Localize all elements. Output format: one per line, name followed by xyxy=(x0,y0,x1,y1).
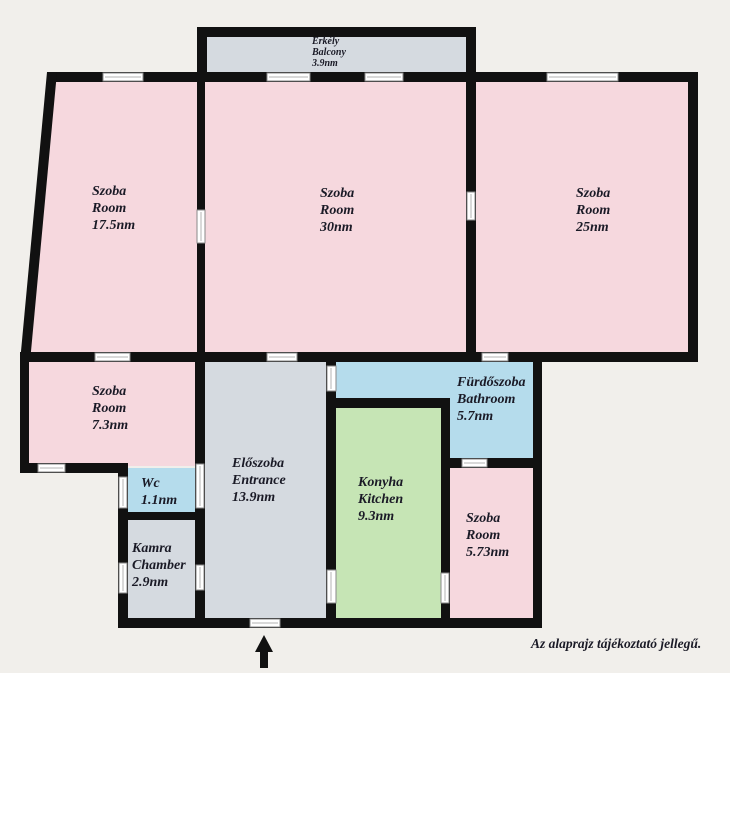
window-marker xyxy=(365,73,403,81)
label-bathroom: Fürdőszoba Bathroom 5.7nm xyxy=(457,374,525,425)
wall xyxy=(688,72,698,362)
room-name-hu: Kamra xyxy=(132,540,186,557)
floor-plan-page: Erkély Balcony 3.9nm Szoba Room 17.5nm S… xyxy=(0,0,730,836)
wall xyxy=(466,27,476,72)
room-name-hu: Fürdőszoba xyxy=(457,374,525,391)
label-balcony: Erkély Balcony 3.9nm xyxy=(312,36,346,69)
room-name-hu: Szoba xyxy=(576,185,610,202)
window-marker xyxy=(547,73,618,81)
room-name-en: Room xyxy=(320,202,354,219)
room-name-en: Kitchen xyxy=(358,491,403,508)
wall xyxy=(20,463,128,473)
door-marker xyxy=(267,353,297,361)
room-area: 2.9nm xyxy=(132,574,186,591)
window-marker xyxy=(119,563,127,593)
door-marker xyxy=(462,459,487,467)
room-name-hu: Szoba xyxy=(92,183,135,200)
label-chamber: Kamra Chamber 2.9nm xyxy=(132,540,186,591)
entrance-arrow xyxy=(255,635,273,668)
label-room-25: Szoba Room 25nm xyxy=(576,185,610,236)
door-marker xyxy=(197,210,205,243)
label-room-5-73: Szoba Room 5.73nm xyxy=(466,510,509,561)
room-name-en: Bathroom xyxy=(457,391,525,408)
room-area: 7.3nm xyxy=(92,417,128,434)
door-marker xyxy=(467,192,475,220)
room-name-en: Entrance xyxy=(232,472,286,489)
room-name-hu: Szoba xyxy=(320,185,354,202)
label-entrance: Előszoba Entrance 13.9nm xyxy=(232,455,286,506)
label-room-7-3: Szoba Room 7.3nm xyxy=(92,383,128,434)
label-room-17-5: Szoba Room 17.5nm xyxy=(92,183,135,234)
room-area: 9.3nm xyxy=(358,508,403,525)
window-marker xyxy=(38,464,65,472)
room-name-en: Room xyxy=(92,400,128,417)
room-name-en: Chamber xyxy=(132,557,186,574)
room-area: 5.7nm xyxy=(457,408,525,425)
door-marker xyxy=(95,353,130,361)
door-marker xyxy=(327,570,336,603)
wall xyxy=(326,398,450,408)
door-marker xyxy=(196,464,204,508)
room-name-hu: Wc xyxy=(141,475,177,492)
room-area: 1.1nm xyxy=(141,492,177,509)
room-name-en: Room xyxy=(466,527,509,544)
room-name-hu: Erkély xyxy=(312,36,346,47)
wall xyxy=(118,512,205,520)
label-room-30: Szoba Room 30nm xyxy=(320,185,354,236)
door-marker xyxy=(441,573,449,603)
door-marker xyxy=(482,353,508,361)
room-area: 17.5nm xyxy=(92,217,135,234)
room-name-en: Balcony xyxy=(312,47,346,58)
room-name-hu: Szoba xyxy=(466,510,509,527)
window-marker xyxy=(119,477,127,508)
room-area: 30nm xyxy=(320,219,354,236)
window-marker xyxy=(103,73,143,81)
room-name-hu: Előszoba xyxy=(232,455,286,472)
window-marker xyxy=(267,73,310,81)
room-name-en: Room xyxy=(576,202,610,219)
wall xyxy=(533,352,542,628)
room-name-hu: Szoba xyxy=(92,383,128,400)
room-area: 13.9nm xyxy=(232,489,286,506)
wall xyxy=(20,352,29,473)
room-area: 25nm xyxy=(576,219,610,236)
wall xyxy=(197,27,207,72)
room-name-en: Room xyxy=(92,200,135,217)
door-marker xyxy=(327,366,336,391)
label-wc: Wc 1.1nm xyxy=(141,475,177,509)
door-marker xyxy=(196,565,204,590)
room-area: 5.73nm xyxy=(466,544,509,561)
label-kitchen: Konyha Kitchen 9.3nm xyxy=(358,474,403,525)
wall xyxy=(443,458,542,468)
room-area: 3.9nm xyxy=(312,58,346,69)
room-name-hu: Konyha xyxy=(358,474,403,491)
disclaimer-note: Az alaprajz tájékoztató jellegű. xyxy=(531,636,701,652)
entrance-door-marker xyxy=(250,619,280,627)
